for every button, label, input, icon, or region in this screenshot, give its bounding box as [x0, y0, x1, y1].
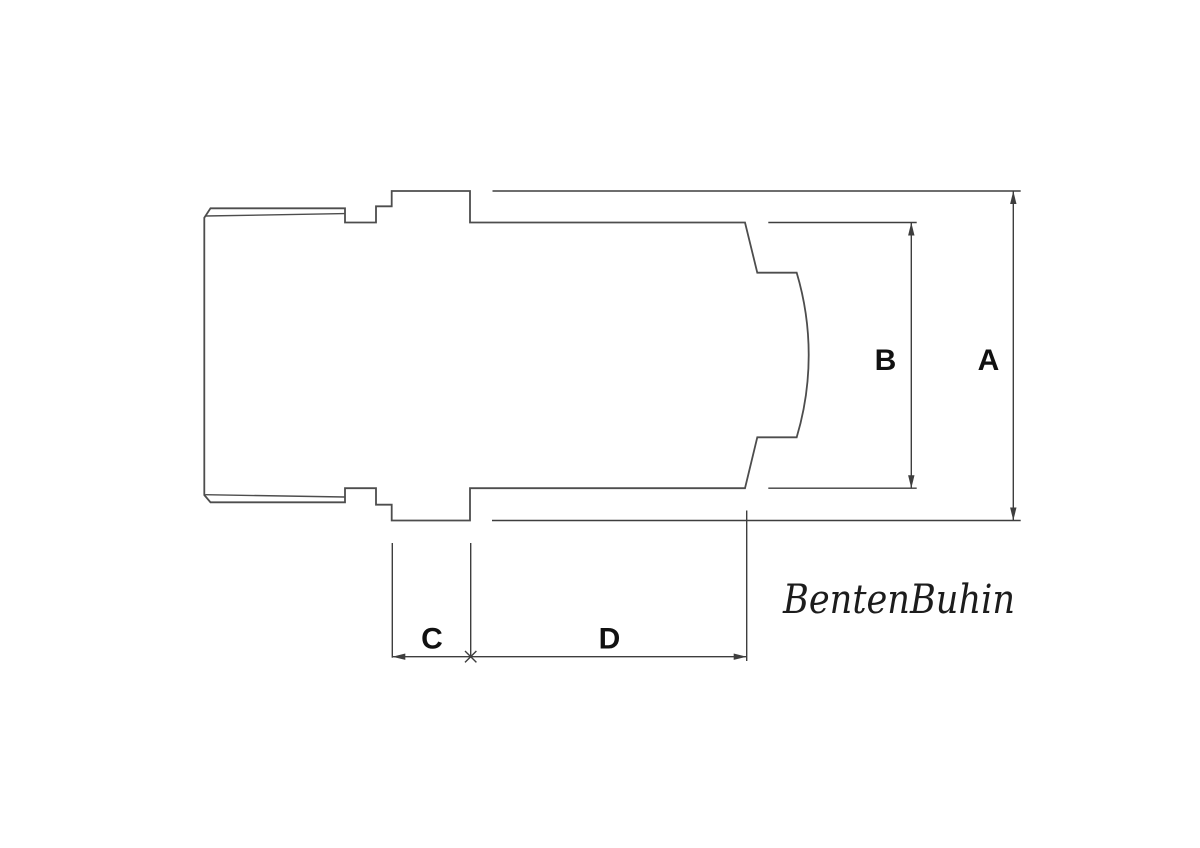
dimension-c-arrow-left-icon	[392, 654, 405, 660]
technical-drawing: A B C D BentenBuhin	[0, 0, 1200, 848]
chamfer-edge-line-bottom	[205, 495, 344, 497]
dimension-label-b: B	[875, 344, 897, 377]
dimension-c-d: C D	[392, 511, 746, 663]
dimension-b-arrow-down-icon	[908, 475, 914, 488]
dimension-a: A	[492, 191, 1021, 521]
part-outline	[204, 191, 808, 521]
drawing-canvas: A B C D BentenBuhin	[0, 0, 1200, 848]
dimension-label-a: A	[978, 344, 1000, 377]
dimension-label-c: C	[421, 623, 443, 656]
dimension-a-arrow-up-icon	[1010, 191, 1016, 204]
dimension-a-arrow-down-icon	[1010, 508, 1016, 521]
part-profile	[204, 191, 808, 521]
dimension-b-arrow-up-icon	[908, 223, 914, 236]
chamfer-edge-line-top	[205, 214, 344, 216]
dimension-label-d: D	[599, 623, 621, 656]
watermark-text: BentenBuhin	[782, 576, 1015, 623]
dimension-b: B	[768, 223, 916, 489]
dimension-d-arrow-right-icon	[734, 654, 747, 660]
